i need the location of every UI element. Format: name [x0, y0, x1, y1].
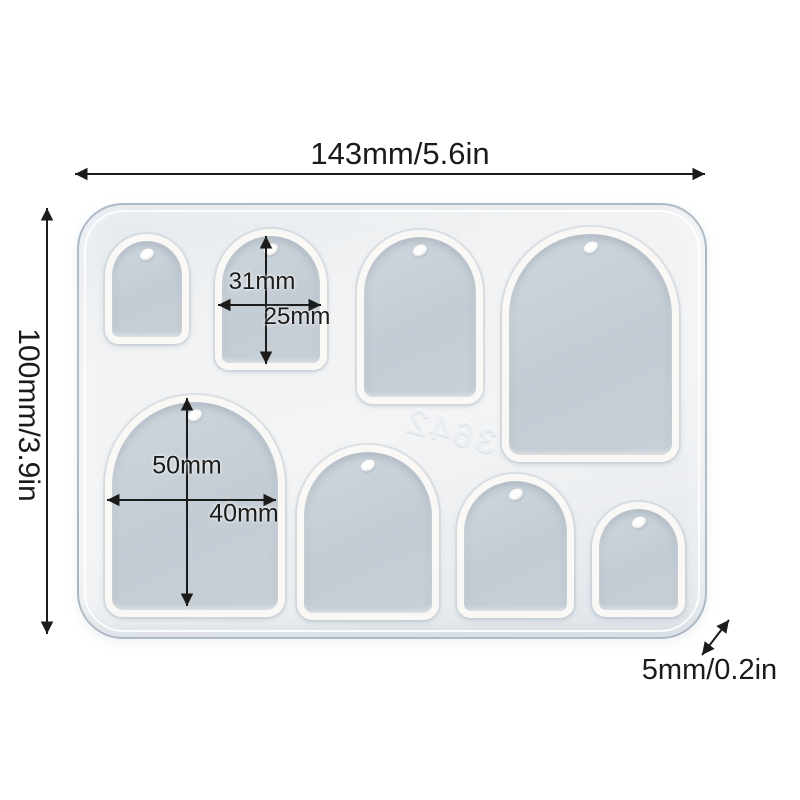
thickness-label: 5mm/0.2in: [627, 654, 792, 687]
hanging-hole: [411, 242, 429, 259]
mold-cavity-6: [297, 445, 439, 620]
small-cavity-width-label: 25mm: [264, 303, 331, 331]
hanging-hole: [186, 407, 204, 424]
small-cavity-height-label: 31mm: [229, 268, 296, 296]
product-spec-image: 3642 143mm/5.6in 100mm/3.9in 5mm/0.2in 3…: [0, 0, 800, 800]
overall-width-label: 143mm/5.6in: [270, 136, 530, 172]
hanging-hole: [138, 246, 156, 263]
mold-cavity-8: [592, 502, 685, 617]
mold-cavity-7: [457, 474, 574, 618]
thickness-arrow: [702, 620, 729, 655]
overall-height-label: 100mm/3.9in: [11, 328, 45, 501]
large-cavity-width-label: 40mm: [209, 500, 278, 529]
hanging-hole: [262, 241, 280, 258]
hanging-hole: [581, 239, 599, 256]
silicone-mold: 3642: [77, 203, 707, 639]
hanging-hole: [506, 486, 524, 503]
hanging-hole: [629, 514, 647, 531]
mold-cavity-2-small-measured: [215, 229, 327, 370]
mold-cavity-3: [357, 230, 483, 404]
hanging-hole: [359, 457, 377, 474]
mold-cavity-1: [105, 234, 189, 344]
mold-cavity-4: [502, 227, 679, 462]
large-cavity-height-label: 50mm: [152, 452, 221, 481]
